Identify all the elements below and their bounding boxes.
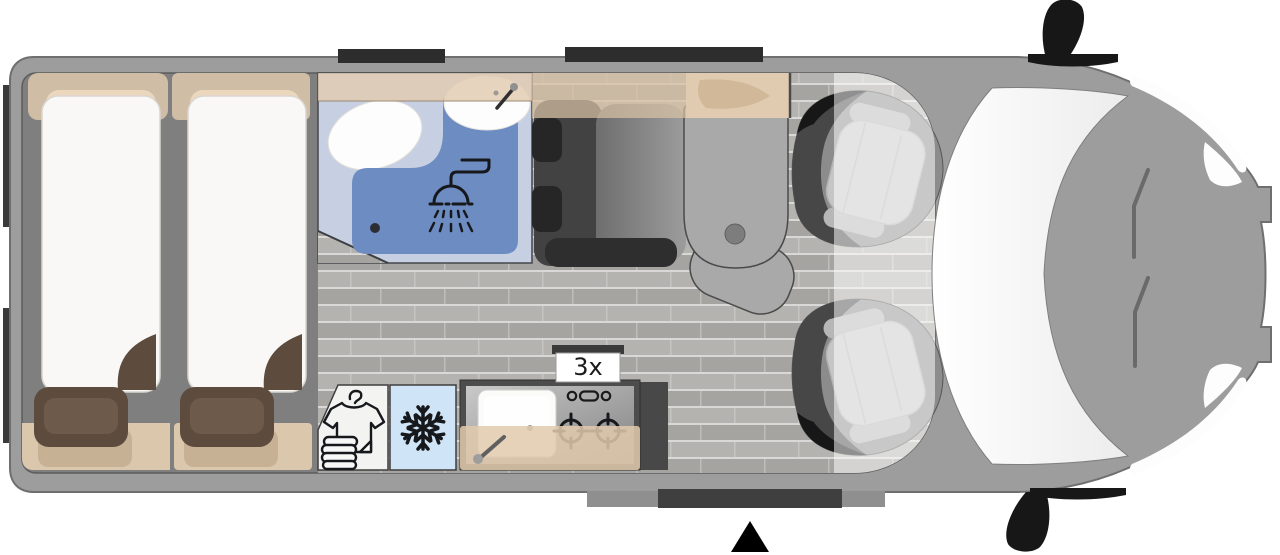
floorplan-drawing: 3x xyxy=(0,0,1280,555)
headrest-bottom xyxy=(532,186,562,232)
interior: 3x xyxy=(22,73,946,473)
side-mirror-top xyxy=(1028,0,1118,67)
drain-dot xyxy=(370,223,380,233)
seat-base-dark xyxy=(545,238,677,267)
cab-zone-overlay xyxy=(834,73,935,473)
burner-count-label: 3x xyxy=(573,353,602,381)
blanket-cushion-highlight xyxy=(44,398,118,434)
counter-overhang xyxy=(460,426,640,470)
overhead-cabinet-table xyxy=(686,73,790,118)
table-pedestal xyxy=(725,224,745,244)
snowflake-icon xyxy=(401,407,444,449)
bathroom xyxy=(318,73,532,263)
kitchen-end-cabinet xyxy=(637,382,668,470)
entry xyxy=(587,489,885,552)
vanity-counter xyxy=(318,73,532,101)
entrance-arrow-icon xyxy=(731,521,769,552)
blanket-cushion-highlight xyxy=(190,398,264,434)
roof-window-bar-right xyxy=(565,47,763,62)
headrest-top xyxy=(532,118,562,162)
sliding-door xyxy=(658,489,842,508)
side-mirror-bottom xyxy=(1006,488,1126,552)
roof-window-bar-left xyxy=(338,49,445,63)
lounge-seat xyxy=(532,100,686,267)
refrigerator xyxy=(390,385,456,470)
campervan-floorplan: 3x xyxy=(0,0,1280,555)
overhead-band-seat xyxy=(532,73,686,118)
